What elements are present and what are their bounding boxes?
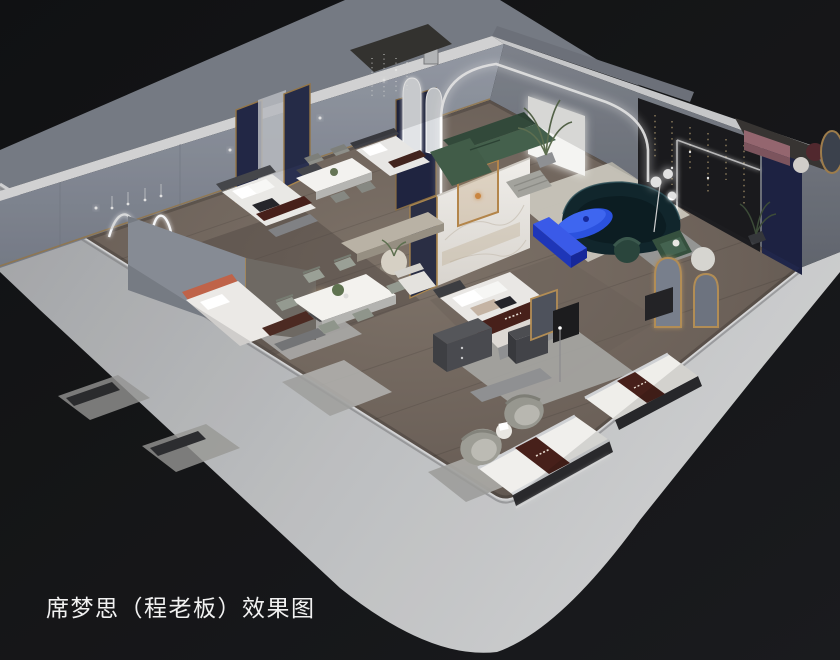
boucle-chair (691, 247, 715, 271)
arched-floor-mirror-2 (694, 274, 718, 327)
vase (344, 294, 349, 299)
amber-vase (475, 193, 481, 199)
screenshot-root: 席梦思（程老板）效果图 (0, 0, 840, 660)
throw-pillow (673, 240, 680, 247)
table-decor (583, 216, 589, 222)
centerpiece-plant (332, 284, 344, 296)
apartment-render (0, 0, 840, 660)
centerpiece (330, 168, 338, 176)
caption-text: 席梦思（程老板）效果图 (46, 589, 316, 623)
green-velvet-chair (614, 237, 640, 263)
